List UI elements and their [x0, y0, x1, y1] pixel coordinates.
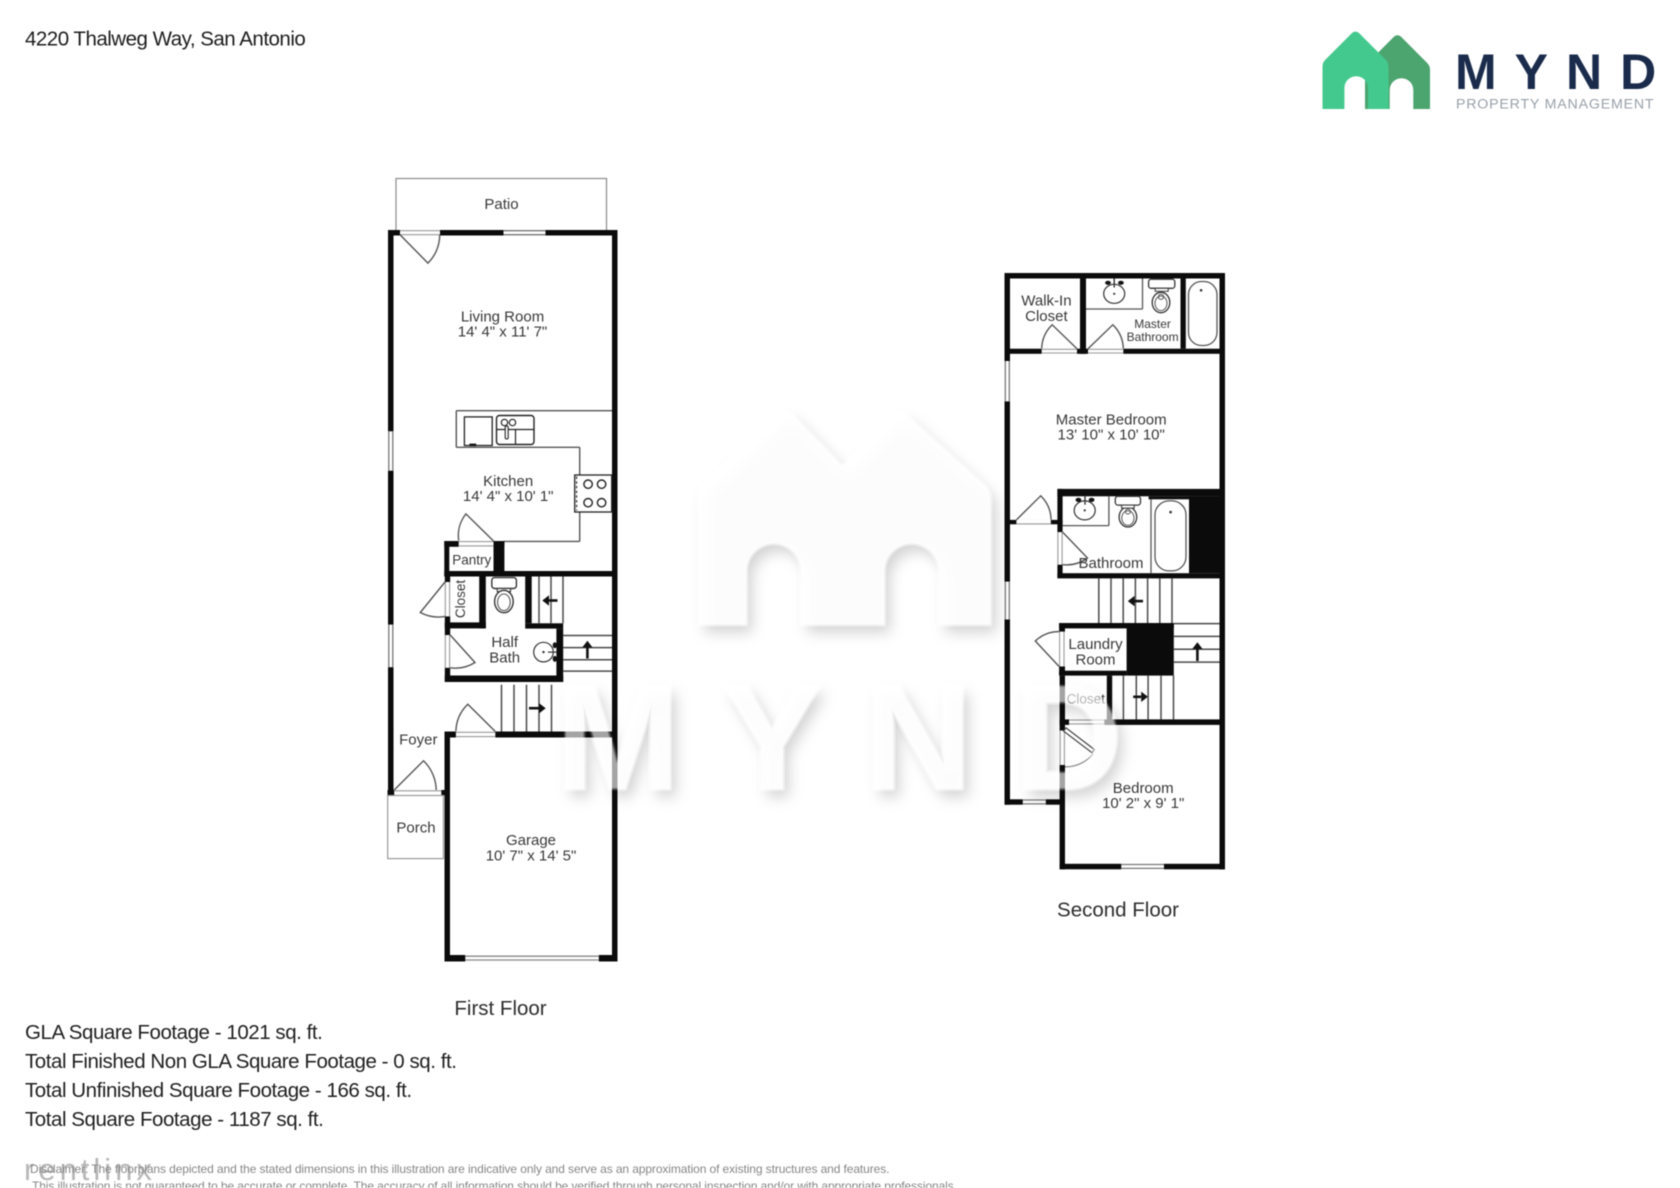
svg-text:MYND: MYND: [555, 653, 1165, 821]
